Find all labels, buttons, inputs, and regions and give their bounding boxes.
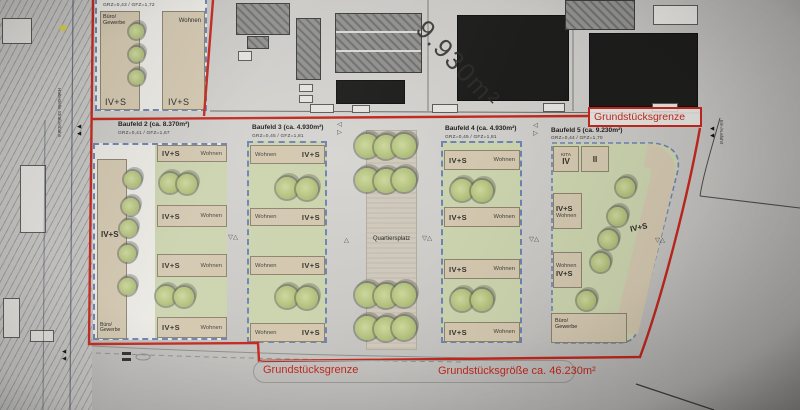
arrow-icon: ◀ (710, 133, 714, 139)
survey-marker: ▷ (337, 130, 342, 137)
quartiersplatz-label: Quartiersplatz (367, 236, 416, 242)
property-boundary-line (0, 0, 800, 410)
survey-marker: ▷ (533, 131, 538, 138)
baufeld5-title: Baufeld 5 (ca. 9.230m²) (551, 127, 622, 134)
grundstuecksgrenze-bottom-label: Grundstücksgrenze (263, 364, 358, 376)
survey-marker: △ (344, 238, 349, 245)
survey-marker: ▽△ (529, 237, 539, 244)
survey-marker: ◁ (337, 122, 342, 129)
site-area-label: Grundstücksgröße ca. 46.230m² (438, 365, 596, 377)
entrance-label: Ein-/Ausfahrt (719, 120, 724, 144)
baufeld4-title: Baufeld 4 (ca. 4.930m²) (445, 125, 516, 132)
arrow-icon: ◀ (710, 126, 714, 132)
baufeld2-title: Baufeld 2 (ca. 8.370m²) (118, 121, 189, 128)
site-plan-photo: GRZ=0,43 / GFZ=1,72 Büro/ Gewerbe IV+S W… (0, 0, 800, 410)
baufeld3-title: Baufeld 3 (ca. 4.930m²) (252, 124, 323, 131)
arrow-icon: ◀ (62, 356, 66, 362)
arrow-icon: ◀ (77, 124, 81, 130)
tram-stop-label: Haltestelle Straßenbahn (57, 88, 62, 137)
grundstuecksgrenze-box: Grundstücksgrenze (588, 107, 702, 127)
baufeld3-grz-label: GRZ=0,45 / GFZ=1,81 (252, 134, 304, 139)
baufeld5-grz-label: GRZ=0,44 / GFZ=1,70 (551, 136, 603, 141)
arrow-icon: ◀ (77, 131, 81, 137)
survey-marker: ▽△ (422, 236, 432, 243)
survey-marker: ▽△ (655, 238, 665, 245)
survey-marker: ◁ (533, 123, 538, 130)
baufeld4-grz-label: GRZ=0,45 / GFZ=1,81 (445, 135, 497, 140)
arrow-icon: ◀ (62, 349, 66, 355)
grundstuecksgrenze-top-label: Grundstücksgrenze (594, 111, 685, 123)
baufeld2-grz-label: GRZ=0,41 / GFZ=1,67 (118, 131, 170, 136)
survey-marker: ▽△ (228, 235, 238, 242)
